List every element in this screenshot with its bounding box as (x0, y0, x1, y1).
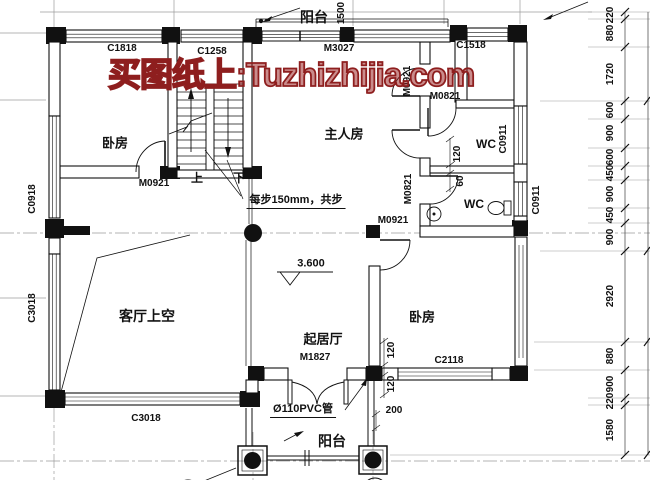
window-c0911-upper (514, 106, 527, 164)
door-m3027-opening (262, 31, 340, 41)
door-m0821-lower (430, 176, 458, 204)
window-c1818 (66, 30, 162, 42)
window-c1258 (181, 30, 243, 42)
window-c0918 (49, 116, 60, 218)
window-c1518 (467, 28, 508, 41)
toilet (488, 202, 504, 215)
window-c0911-right (514, 182, 527, 216)
balcony-column-left (244, 452, 261, 469)
door-m0821-top (428, 108, 456, 136)
door-m0921-bedroom2 (380, 240, 410, 270)
watermark-text: 买图纸上:Tuzhizhijia.com (108, 48, 648, 90)
stair-note-leader-2 (227, 160, 243, 199)
wc-fixtures (427, 201, 511, 221)
hall-partition (246, 178, 252, 366)
door-m1827 (288, 380, 348, 404)
void-diagonal (61, 235, 190, 392)
window-bedroom-right (515, 237, 527, 366)
stair-down-arrow (225, 98, 231, 158)
window-band-top (354, 30, 450, 42)
window-c2118 (398, 368, 492, 380)
floor-plan-canvas: 买图纸上:Tuzhizhijia.com 阳台C1818C1258M3027C1… (0, 0, 650, 480)
level-mark-3600 (277, 272, 333, 285)
small-dimension-marks (372, 136, 454, 431)
round-column (244, 224, 262, 242)
stairs (169, 84, 243, 199)
window-c3018-bottom (65, 393, 240, 405)
balcony-column-right (365, 452, 382, 469)
window-c3018-left (49, 254, 60, 390)
door-m0921-master (392, 130, 420, 158)
grid-bubbles (176, 468, 387, 480)
